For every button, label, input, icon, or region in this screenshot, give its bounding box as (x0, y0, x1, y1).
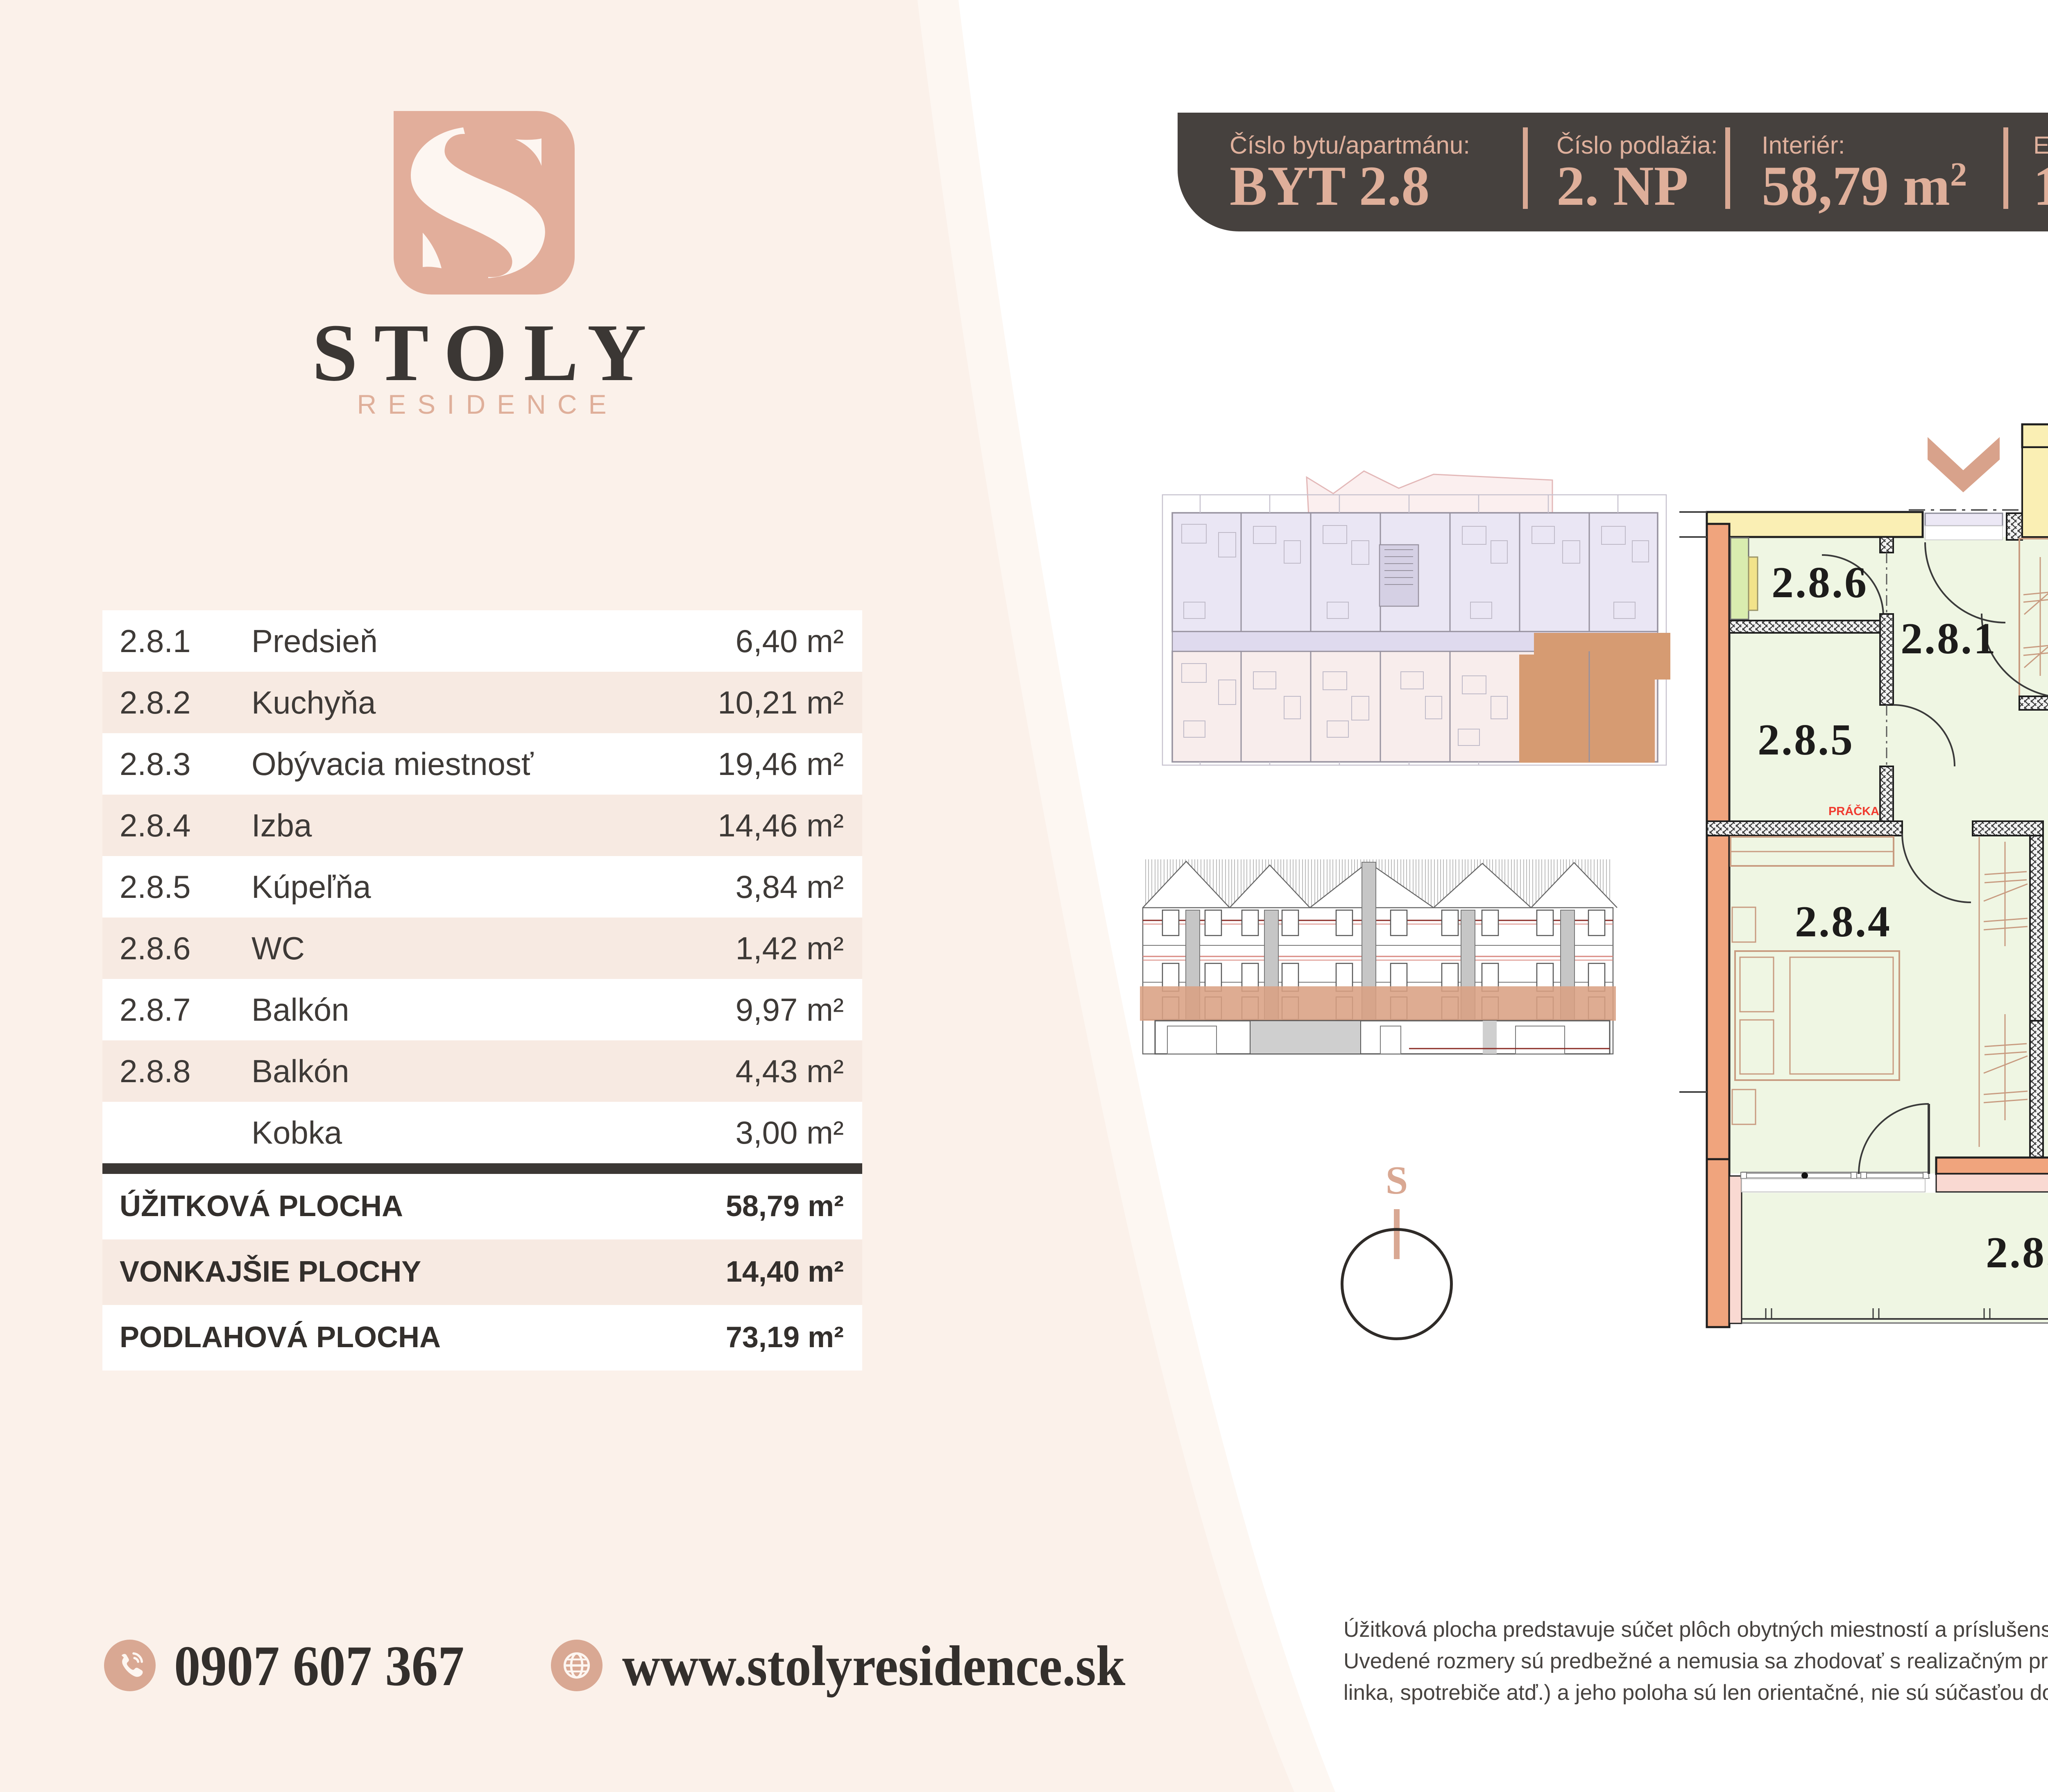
svg-text:2.8.7: 2.8.7 (1986, 1228, 2048, 1277)
svg-text:2.8.4: 2.8.4 (1795, 897, 1892, 946)
svg-text:2.8.1: 2.8.1 (1901, 614, 1997, 663)
svg-text:PRÁČKA: PRÁČKA (1828, 804, 1879, 818)
svg-text:2.8.6: 2.8.6 (1772, 558, 1868, 607)
svg-text:2.8.5: 2.8.5 (1758, 716, 1854, 764)
